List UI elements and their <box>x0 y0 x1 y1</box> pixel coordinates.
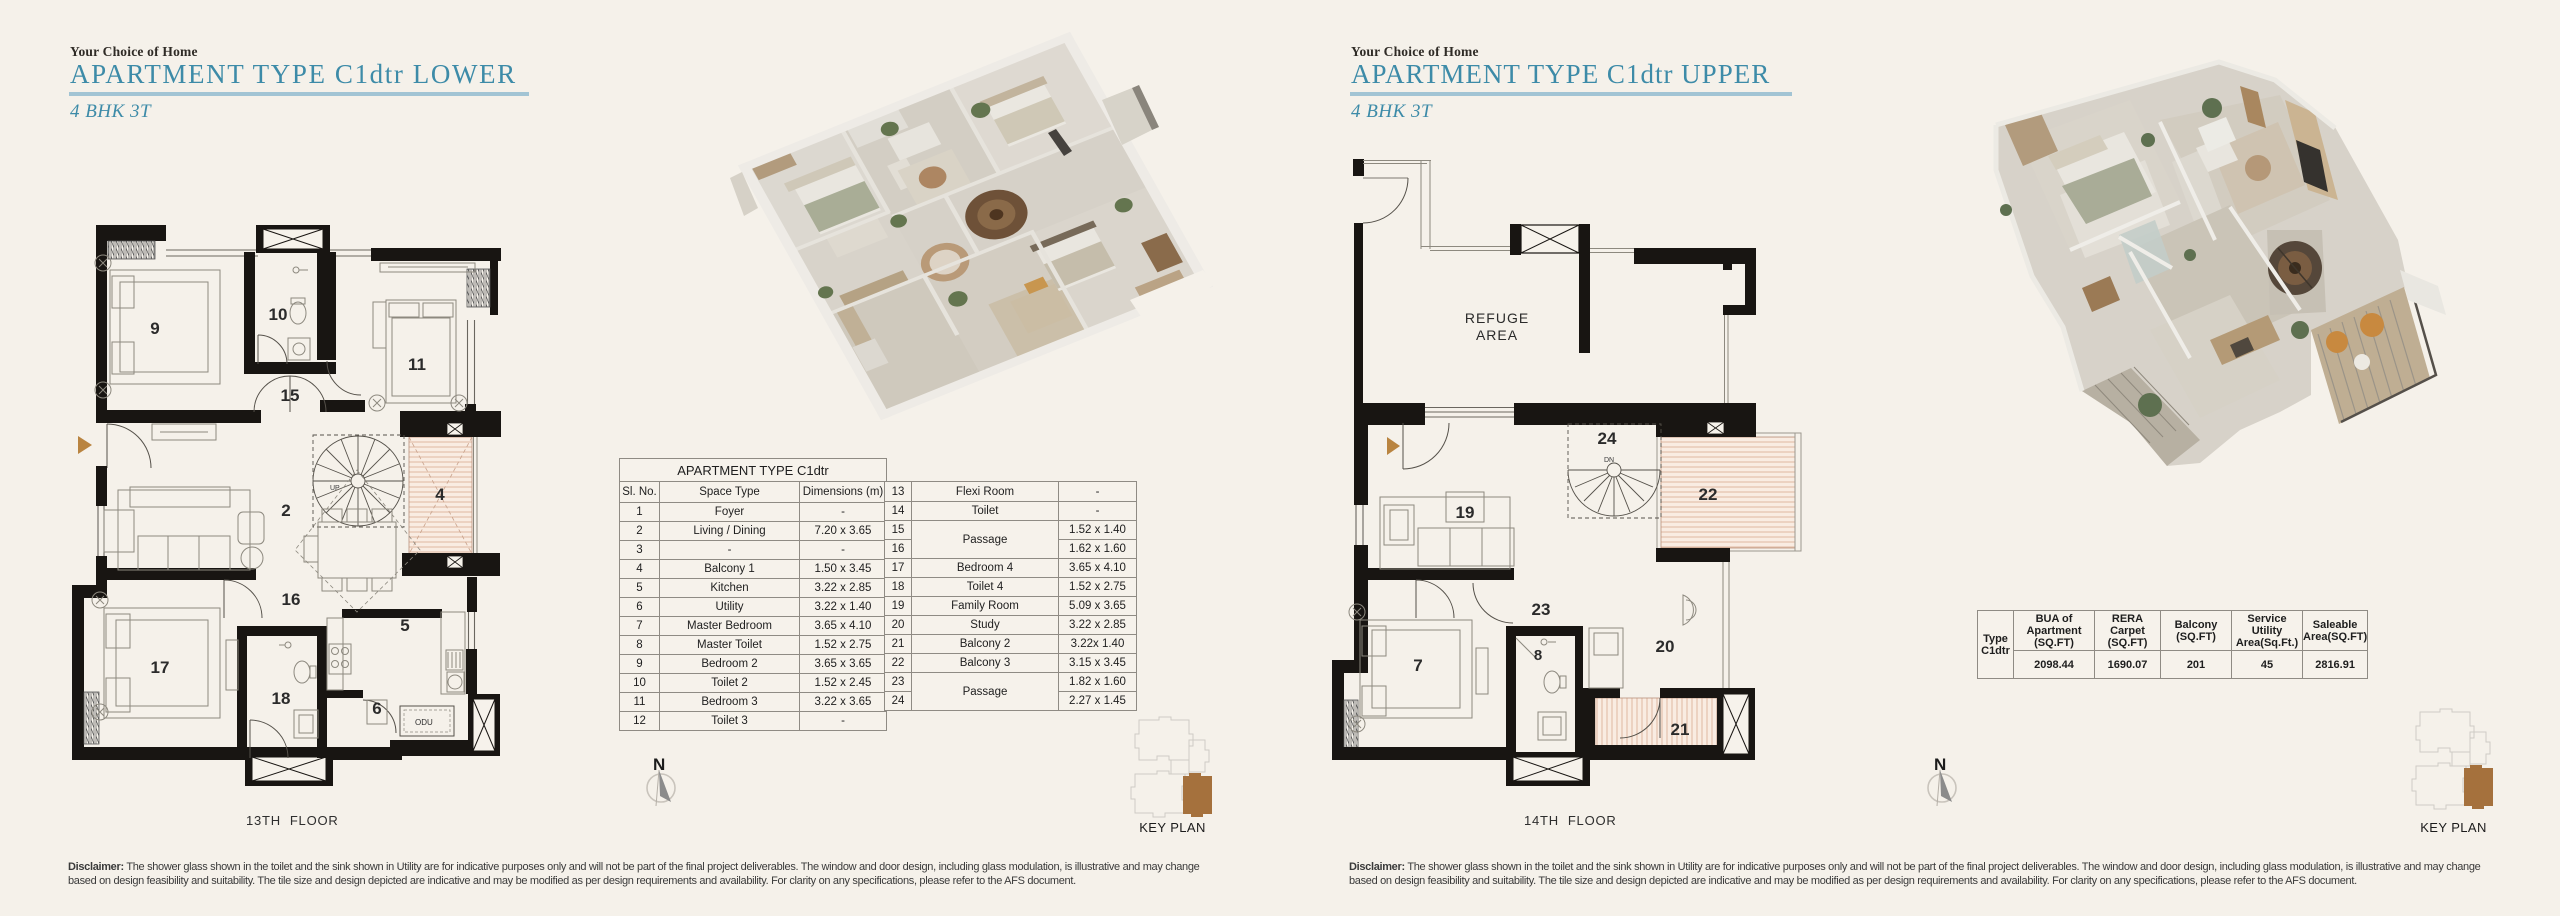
svg-text:8: 8 <box>1534 647 1542 664</box>
svg-text:20: 20 <box>1656 637 1675 656</box>
svg-text:24: 24 <box>1598 429 1617 448</box>
svg-text:10: 10 <box>269 305 288 324</box>
svg-text:6: 6 <box>372 699 381 718</box>
svg-text:23: 23 <box>1532 600 1551 619</box>
svg-text:15: 15 <box>281 386 300 405</box>
svg-text:DN: DN <box>1604 457 1614 464</box>
svg-text:21: 21 <box>1671 720 1690 739</box>
svg-text:18: 18 <box>272 689 291 708</box>
svg-text:17: 17 <box>151 658 170 677</box>
svg-text:19: 19 <box>1456 503 1475 522</box>
svg-text:4: 4 <box>435 485 445 504</box>
svg-text:22: 22 <box>1699 485 1718 504</box>
svg-text:16: 16 <box>282 590 301 609</box>
svg-text:5: 5 <box>400 616 409 635</box>
svg-text:11: 11 <box>408 355 426 374</box>
svg-text:9: 9 <box>150 319 159 338</box>
svg-text:REFUGE: REFUGE <box>1465 310 1529 326</box>
svg-text:7: 7 <box>1413 656 1422 675</box>
svg-text:2: 2 <box>281 501 290 520</box>
svg-text:ODU: ODU <box>415 718 433 727</box>
svg-text:UP: UP <box>330 485 340 492</box>
svg-text:AREA: AREA <box>1476 327 1518 343</box>
